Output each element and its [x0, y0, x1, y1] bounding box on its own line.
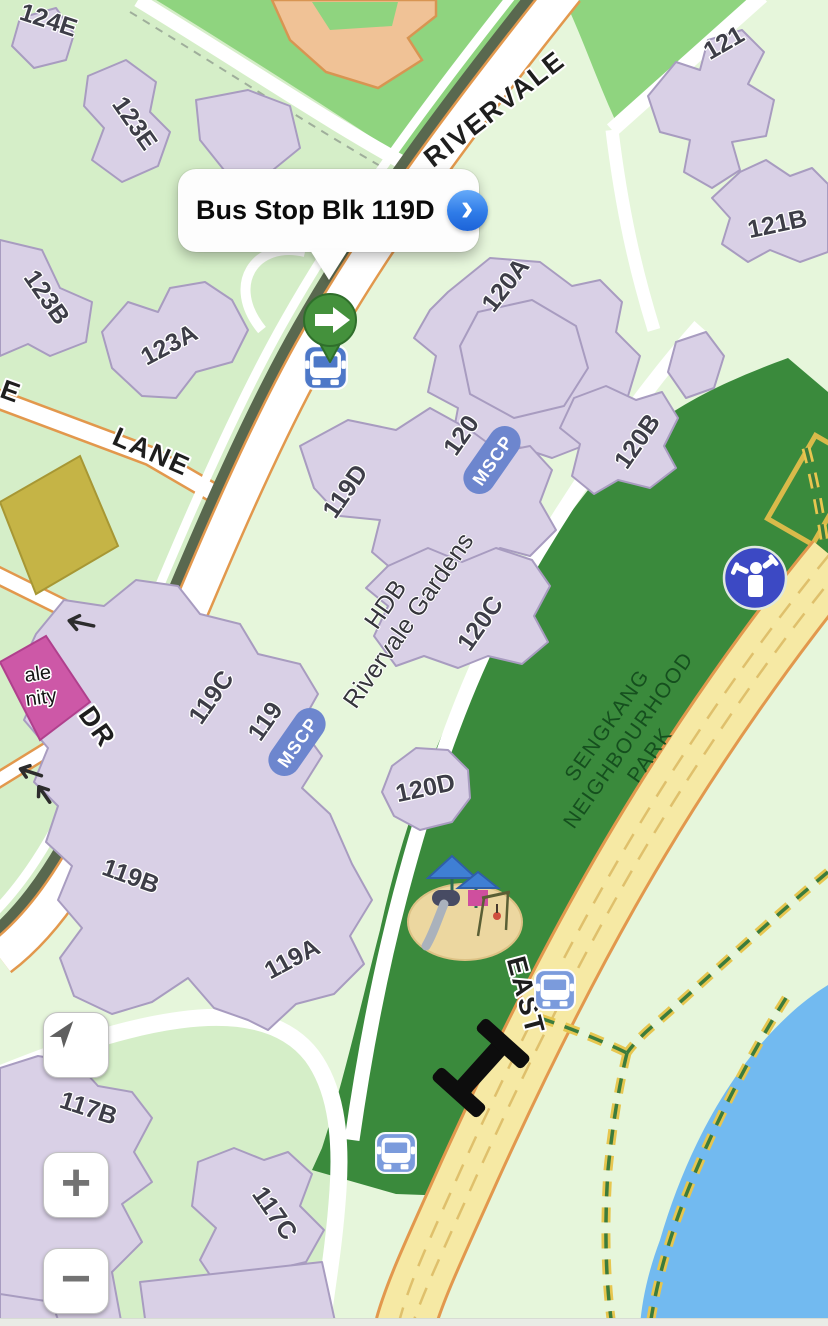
- bus-icon[interactable]: [535, 970, 575, 1010]
- callout-title: Bus Stop Blk 119D: [196, 195, 435, 226]
- bus-stop-callout[interactable]: Bus Stop Blk 119D ›: [178, 169, 479, 252]
- screen-bottom-edge: [0, 1318, 828, 1326]
- callout-tail: [310, 250, 348, 280]
- bus-icon[interactable]: [376, 1133, 416, 1173]
- locate-me-button[interactable]: [43, 1012, 109, 1078]
- plus-icon: +: [61, 1157, 91, 1209]
- building-120b: [560, 386, 678, 494]
- callout-detail-button[interactable]: ›: [447, 190, 488, 231]
- map-screen: 124E 123E 123B 123A 121 121B 120A 120B 1…: [0, 0, 828, 1326]
- zoom-in-button[interactable]: +: [43, 1152, 109, 1218]
- location-arrow-icon: [44, 1013, 84, 1053]
- minus-icon: −: [61, 1253, 91, 1305]
- chevron-right-icon: ›: [461, 189, 474, 227]
- fitness-corner-icon[interactable]: [724, 547, 786, 609]
- label-community-1: ale: [23, 661, 53, 687]
- label-community-2: nity: [24, 685, 58, 711]
- zoom-out-button[interactable]: −: [43, 1248, 109, 1314]
